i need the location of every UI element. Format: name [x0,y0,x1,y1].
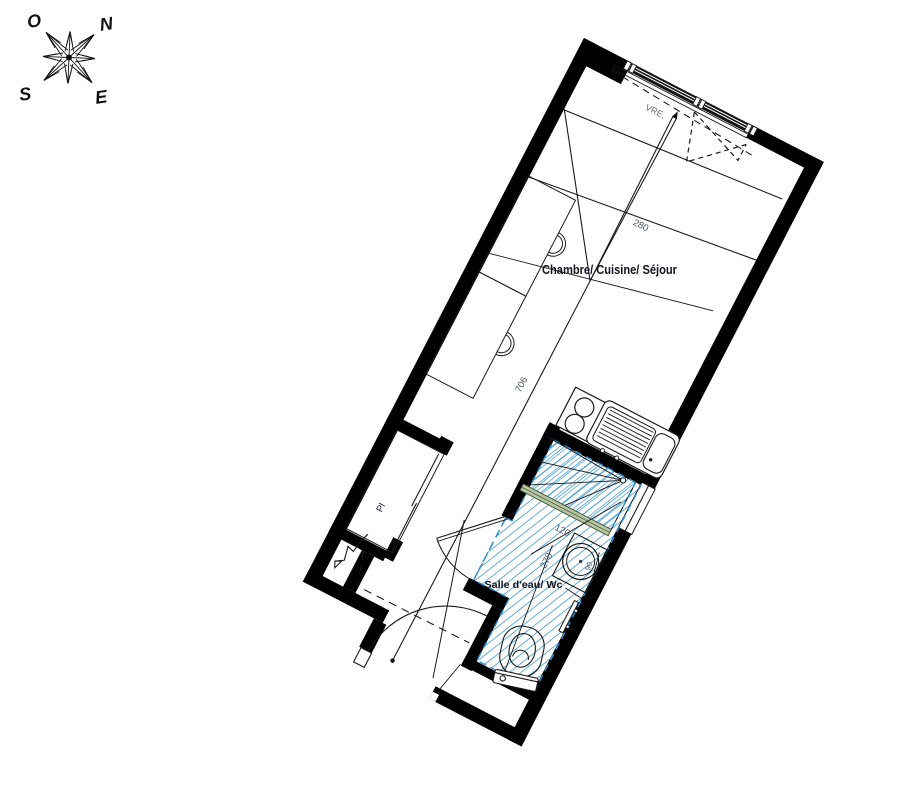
svg-text:O: O [26,10,43,32]
svg-text:Salle d'eau/ Wc: Salle d'eau/ Wc [485,580,563,591]
svg-text:Chambre/ Cuisine/ Séjour: Chambre/ Cuisine/ Séjour [542,262,677,277]
